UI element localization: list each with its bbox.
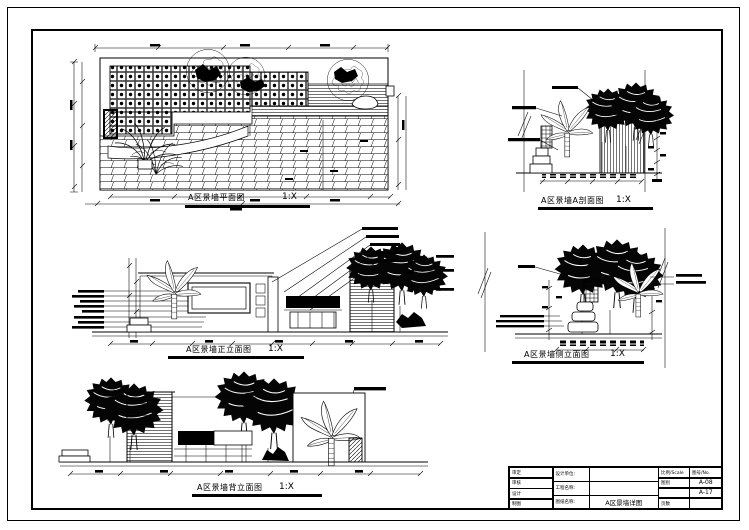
- shrub-mass: [396, 312, 426, 328]
- bench-band: [178, 431, 214, 445]
- pergola-trellis-hatch: [110, 66, 250, 112]
- section-view-linework: [508, 70, 674, 192]
- titleblock-approved-label: 审定: [509, 467, 553, 478]
- front-title: A区景墙正立面图: [186, 345, 251, 354]
- bench-base: [290, 312, 336, 328]
- titleblock-scale-header: 比例/Scale: [658, 467, 690, 478]
- step-detail: [138, 160, 152, 169]
- step-detail: [127, 325, 151, 332]
- titleblock-drawn-label: 制图: [509, 499, 553, 510]
- planter-box: [104, 110, 117, 138]
- titleblock-type-label: 图别: [658, 478, 690, 489]
- titleblock-sheet-name-label: 图纸名称:: [553, 495, 590, 510]
- back-title: A区景墙背立面图: [197, 483, 262, 492]
- plan-view-linework: [70, 44, 406, 211]
- step-detail: [530, 164, 552, 173]
- base-hatch-strip: [542, 174, 638, 178]
- titleblock-project-value: [589, 481, 659, 496]
- louver-screen: [127, 392, 172, 462]
- section-title-underline: [538, 207, 653, 210]
- step-detail: [533, 156, 550, 164]
- titleblock-designed-label: 设计: [509, 488, 553, 499]
- titleblock-design-unit-label: 设计单位:: [553, 467, 590, 482]
- plan-title-underline: [185, 205, 310, 208]
- section-scale: 1:X: [616, 196, 631, 205]
- titleblock-design-unit-value: [589, 467, 659, 482]
- pillar-detail: [584, 280, 598, 302]
- base-hatch-strip: [556, 340, 644, 346]
- step-detail: [59, 456, 90, 462]
- bench-band-outline: [214, 431, 252, 445]
- plan-scale: 1:X: [282, 193, 297, 202]
- back-title-underline: [192, 494, 322, 497]
- side-scale: 1:X: [610, 350, 625, 359]
- side-elevation-linework: [478, 228, 706, 368]
- titleblock-empty-cell: [689, 498, 723, 510]
- planter-box: [349, 438, 362, 462]
- wall-tile-detail: [256, 284, 265, 293]
- cad-sheet: A区景墙平面图 1:X A区景墙A剖面图 1:X A区景墙正立面图 1:X A区…: [0, 0, 749, 530]
- titleblock-empty-cell: [658, 488, 690, 499]
- titleblock-sheet-number-2: A-17: [689, 488, 723, 499]
- titleblock-checked-label: 审核: [509, 478, 553, 489]
- step-detail: [62, 450, 88, 456]
- wall-pier: [268, 277, 278, 332]
- fixture-detail: [386, 86, 394, 96]
- front-scale: 1:X: [268, 345, 283, 354]
- shrub-mass: [262, 447, 289, 461]
- stacked-stone: [568, 322, 598, 332]
- side-title-underline: [512, 361, 644, 364]
- wall-panel-inner: [192, 287, 246, 309]
- titleblock-drawing-name: A区景墙详图: [589, 495, 659, 510]
- section-title: A区景墙A剖面图: [541, 196, 604, 205]
- wall-tile-detail: [256, 308, 265, 317]
- plan-title: A区景墙平面图: [188, 193, 245, 202]
- titleblock-pages-label: 页数: [658, 498, 690, 510]
- stacked-stone: [577, 302, 593, 311]
- drawing-linework: [0, 0, 749, 530]
- wall-tile-detail: [256, 296, 265, 305]
- step-detail: [536, 148, 548, 156]
- titleblock-sheet-number-1: A-08: [689, 478, 723, 489]
- front-title-underline: [168, 356, 304, 359]
- back-elevation-linework: [59, 371, 428, 476]
- titleblock-number-header: 图号/No.: [689, 467, 723, 478]
- titleblock-project-label: 工程名称:: [553, 481, 590, 496]
- title-block: 审定 审核 设计 制图 设计单位: 工程名称: 图纸名称: A区景墙详图 比例/…: [508, 466, 723, 509]
- back-scale: 1:X: [279, 483, 294, 492]
- pergola-trellis-hatch-lower: [110, 112, 172, 134]
- step-detail: [130, 318, 148, 325]
- stacked-stone: [572, 312, 595, 321]
- front-elevation-linework: [72, 227, 454, 346]
- side-title: A区景墙侧立面图: [524, 350, 589, 359]
